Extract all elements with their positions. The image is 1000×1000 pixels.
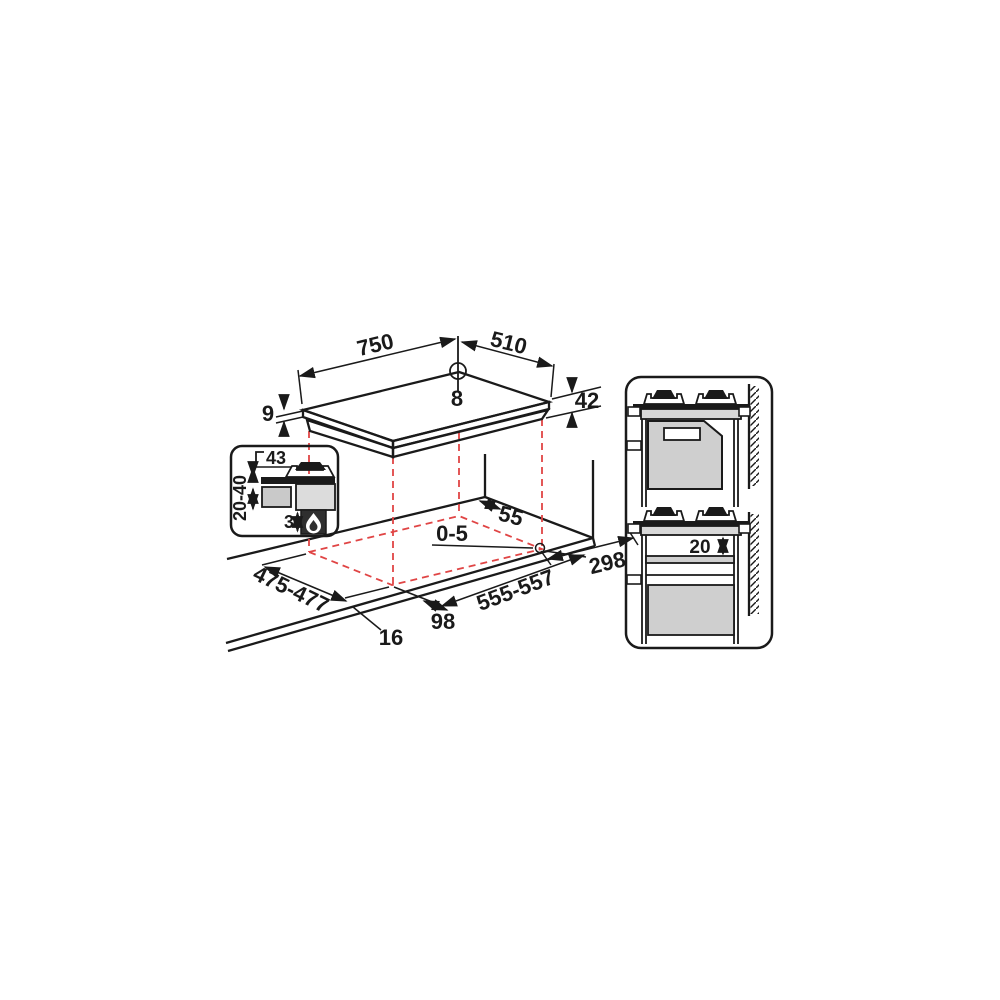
dim-label-glass-thickness: 9 xyxy=(262,401,274,426)
fixing-bracket-left xyxy=(628,407,640,416)
hob-body-front-face xyxy=(393,410,548,457)
extension-line xyxy=(276,417,303,423)
dim-label-front-clearance: 98 xyxy=(431,609,455,634)
dim-label-hob-depth: 510 xyxy=(488,326,530,359)
side-view-above-shelf: 20 xyxy=(627,507,759,644)
extension-line xyxy=(345,587,389,598)
burner-profile xyxy=(644,507,684,521)
dim-label-burner-box-gap: 3 xyxy=(284,512,294,532)
dim-label-hole-position: 0-5 xyxy=(436,521,468,546)
dim-bracket xyxy=(256,452,264,465)
side-tab xyxy=(627,575,641,584)
cabinet-side-right xyxy=(734,419,738,507)
dim-label-rear-clearance: 55 xyxy=(496,501,526,531)
oven-vent-slot xyxy=(664,428,700,440)
adjacent-unit-section xyxy=(262,487,291,507)
dim-label-right-clearance: 298 xyxy=(586,546,628,579)
installation-side-views: 20 xyxy=(626,377,772,648)
extension-line xyxy=(276,411,303,417)
dim-label-overhang: 43 xyxy=(266,448,286,468)
dim-label-hole-diameter: 8 xyxy=(451,386,463,411)
hob-body-section xyxy=(296,484,335,510)
fixing-bracket-right xyxy=(739,524,750,533)
dim-label-front-edge: 16 xyxy=(379,625,403,650)
dim-label-hob-height: 42 xyxy=(575,388,599,413)
hob-body-side xyxy=(641,526,741,535)
burner-profile xyxy=(696,390,736,404)
dim-label-shelf-clearance: 20 xyxy=(689,537,710,558)
fixing-bracket-left xyxy=(628,524,640,533)
burner-cap-section xyxy=(295,462,326,470)
cabinet-side-left xyxy=(642,419,646,507)
dim-label-hob-width: 750 xyxy=(354,328,396,361)
wall-hatching xyxy=(751,386,760,486)
extension-line xyxy=(551,364,554,397)
leader-line xyxy=(432,545,533,548)
section-detail-inset: 43 20-40 3 xyxy=(230,446,338,536)
dim-label-clearance-range: 20-40 xyxy=(230,475,250,521)
worktop-front-edge-cap xyxy=(593,538,595,546)
side-view-above-oven xyxy=(627,384,759,507)
burner-profile xyxy=(644,390,684,404)
hob-installation-diagram: 750 510 8 9 42 55 0-5 298 475-477 55 xyxy=(0,0,1000,1000)
wall-hatching xyxy=(751,514,760,614)
side-tab xyxy=(627,441,641,450)
extension-line xyxy=(262,554,306,565)
burner-profile xyxy=(696,507,736,521)
hob-glass-section xyxy=(261,477,335,484)
dim-label-cutout-width: 555-557 xyxy=(473,564,557,616)
hob-body-side xyxy=(641,409,741,419)
drawer-front xyxy=(648,585,734,635)
dim-label-cutout-depth: 475-477 xyxy=(249,561,333,618)
cabinet-side-left xyxy=(642,535,646,644)
installation-diagram-page: 750 510 8 9 42 55 0-5 298 475-477 55 xyxy=(0,0,1000,1000)
fixing-bracket-right xyxy=(739,407,750,416)
